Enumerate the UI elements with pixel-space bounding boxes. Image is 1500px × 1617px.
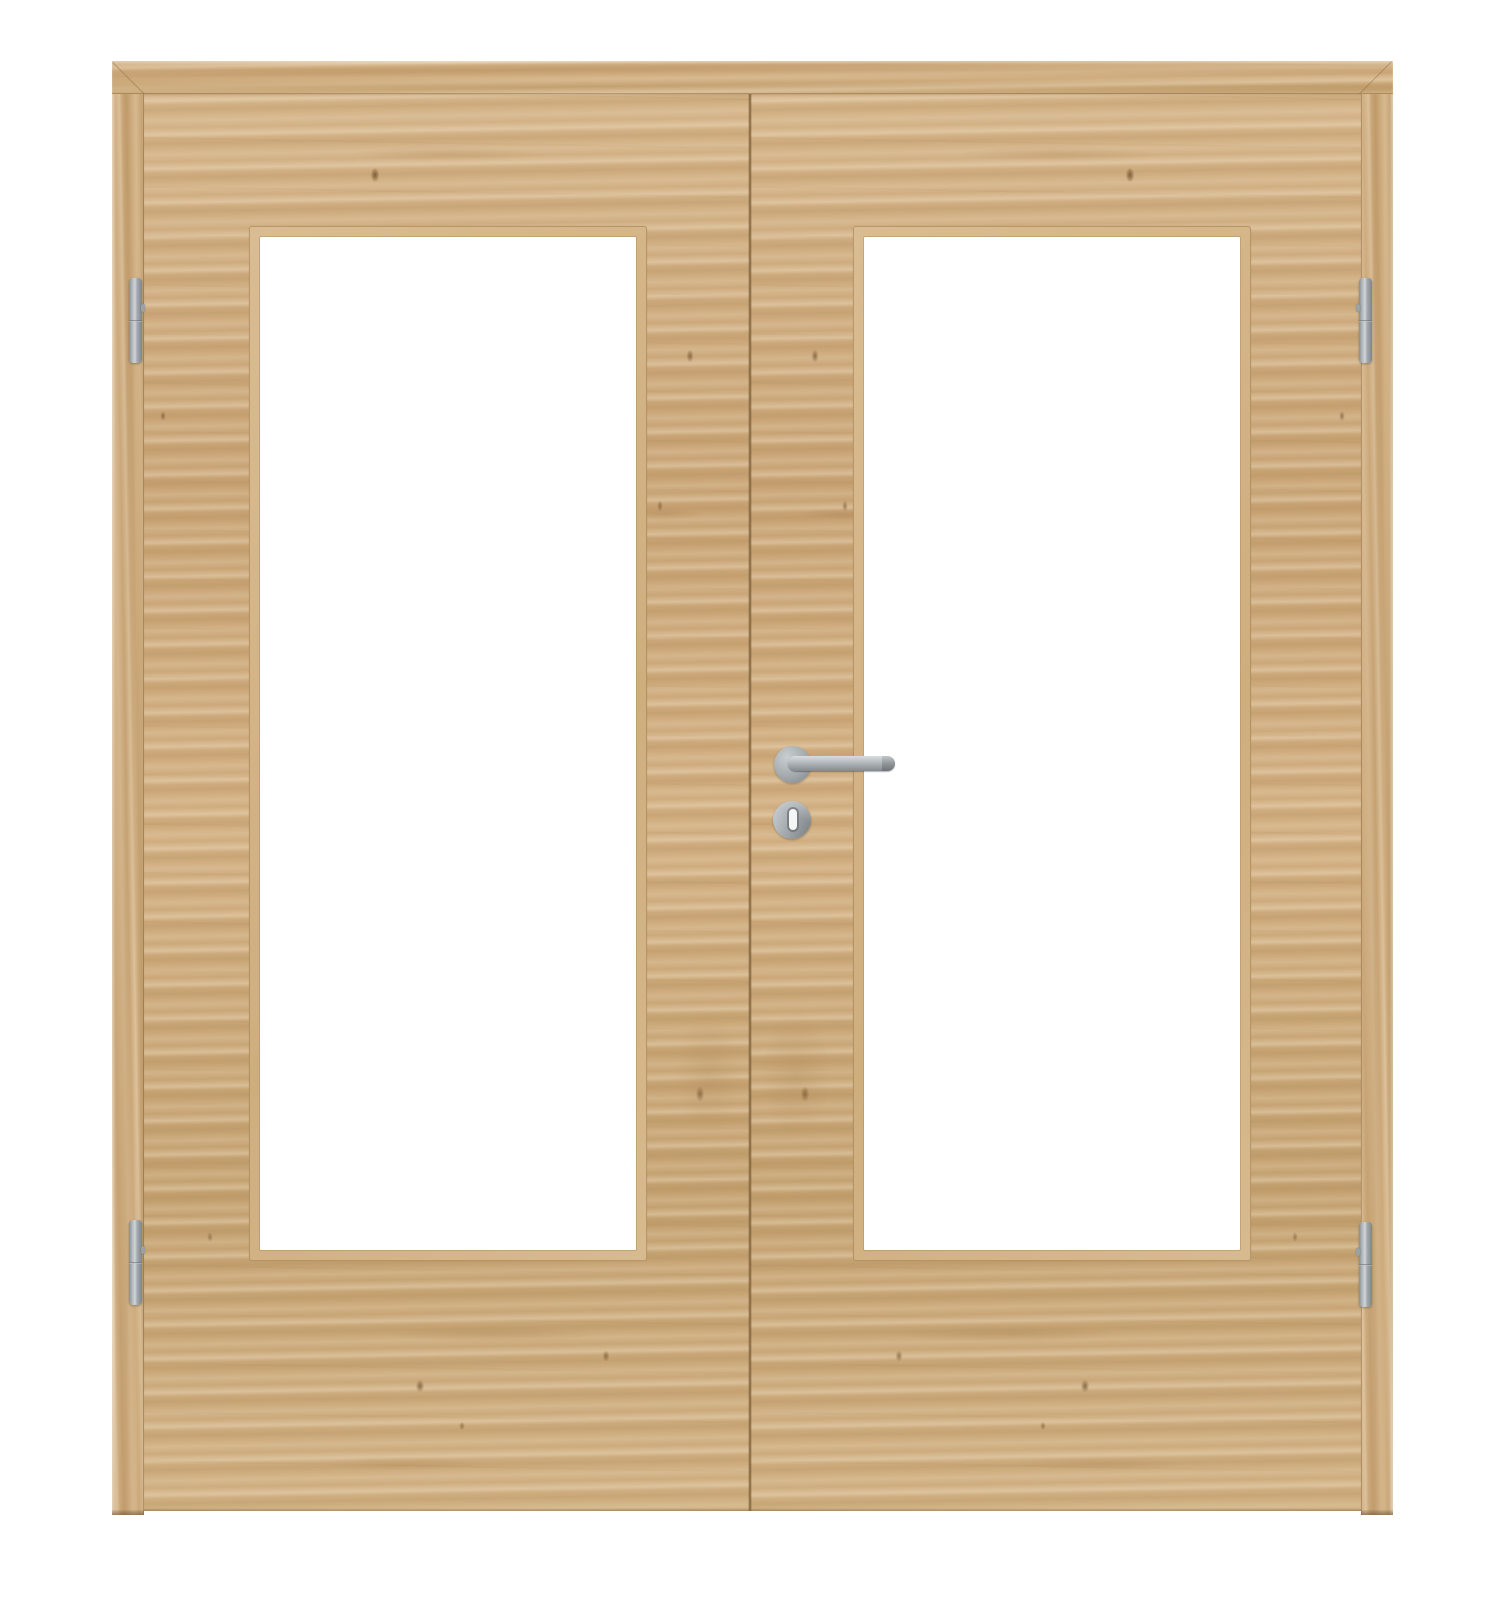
hinge-top-left	[129, 278, 142, 363]
left-door-leaf	[144, 94, 750, 1511]
door-meeting-gap	[748, 94, 752, 1511]
keyhole-icon	[789, 809, 797, 830]
right-glass-cutout	[853, 226, 1251, 1261]
left-glass-cutout	[249, 226, 647, 1261]
door-frame-unit	[112, 61, 1393, 1515]
door-handle	[788, 756, 895, 771]
product-photo-double-door	[0, 0, 1500, 1617]
left-glass-pane	[260, 237, 636, 1250]
door-frame-head	[112, 61, 1393, 94]
frame-foot-left	[112, 1510, 144, 1515]
frame-foot-right	[1361, 1510, 1393, 1515]
hinge-top-right	[1359, 278, 1372, 363]
hinge-pin	[1356, 1248, 1360, 1256]
hinge-pin	[141, 304, 145, 312]
hinge-pin	[1356, 304, 1360, 312]
hinge-pin	[141, 1246, 145, 1254]
hinge-bottom-left	[129, 1220, 142, 1305]
hinge-bottom-right	[1359, 1222, 1372, 1307]
right-door-leaf	[750, 94, 1361, 1511]
right-glass-pane	[864, 237, 1240, 1250]
